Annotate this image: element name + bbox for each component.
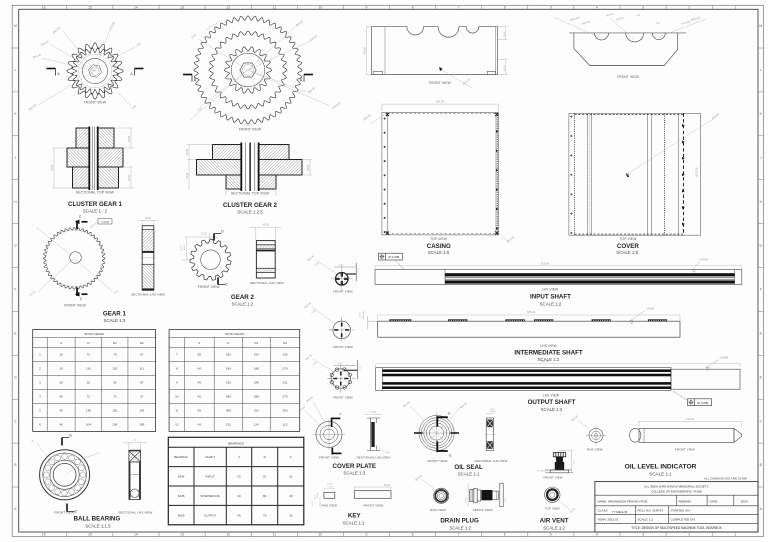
svg-text:152: 152 [112,409,117,413]
svg-text:10: 10 [318,5,322,9]
svg-text:CLUSTER GEAR 2: CLUSTER GEAR 2 [223,202,278,209]
svg-text:20: 20 [59,367,63,371]
svg-text:CLASS:: CLASS: [598,509,609,513]
svg-text:208: 208 [112,423,117,427]
svg-text:G: G [759,244,762,248]
svg-text:GEAR 2: GEAR 2 [231,294,255,301]
svg-text:5: 5 [550,5,552,9]
svg-text:10.03: 10.03 [574,459,576,465]
svg-text:FRONT VIEW: FRONT VIEW [198,285,220,289]
svg-text:124: 124 [254,423,259,427]
svg-text:40: 40 [59,423,63,427]
svg-text:45: 45 [198,395,202,399]
svg-text:REMARK: REMARK [679,499,692,503]
svg-text:L: L [14,68,16,72]
svg-text:10: 10 [318,533,322,537]
svg-text:TITLE: DESIGN OF MULTISPEED MA: TITLE: DESIGN OF MULTISPEED MACHINE TOOL… [631,526,722,530]
svg-text:15.00: 15.00 [504,65,506,71]
svg-text:FRONT VIEW: FRONT VIEW [239,128,262,132]
svg-text:11: 11 [272,5,276,9]
svg-text:16: 16 [42,533,46,537]
svg-text:0.002: 0.002 [360,312,362,318]
svg-text:40.00: 40.00 [128,135,131,142]
svg-text:INTERMEDIATE: INTERMEDIATE [201,494,220,498]
svg-text:SHAFT: SHAFT [205,455,215,459]
svg-text:E: E [448,412,450,416]
svg-text:52: 52 [263,475,267,479]
svg-text:7.00: 7.00 [490,409,495,412]
svg-text:68.00: 68.00 [384,484,391,487]
svg-text:2: 2 [688,533,690,537]
svg-text:M: M [759,24,762,28]
svg-text:FRONT VIEW: FRONT VIEW [333,345,353,349]
svg-text:18: 18 [289,494,293,498]
svg-text:40: 40 [237,494,241,498]
svg-text:RHS VIEW: RHS VIEW [321,504,337,508]
svg-text:YEAR: 2022-23: YEAR: 2022-23 [598,517,619,521]
svg-text:40.00: 40.00 [263,223,270,226]
svg-text:SPUR GEARS: SPUR GEARS [225,332,245,336]
svg-text:SCALE 1:2: SCALE 1:2 [232,302,254,307]
svg-text:DRAIN PLUG: DRAIN PLUG [440,518,479,525]
svg-text:F: F [14,288,16,292]
svg-text:96: 96 [113,381,117,385]
svg-text:0.0008: 0.0008 [700,257,708,261]
svg-text:SCALE 1:2: SCALE 1:2 [449,526,471,531]
svg-text:SPUR GEARS: SPUR GEARS [84,332,104,336]
svg-text:Ø 0.008: Ø 0.008 [389,255,400,259]
svg-text:12: 12 [175,423,179,427]
svg-text:312: 312 [254,409,259,413]
svg-text:FRONT VIEW: FRONT VIEW [54,511,74,515]
svg-text:0.008: 0.008 [327,486,333,488]
svg-text:2: 2 [688,5,690,9]
svg-text:14: 14 [134,5,138,9]
svg-text:7: 7 [458,533,460,537]
svg-text:87: 87 [140,381,144,385]
svg-text:SCALE 1:2.5: SCALE 1:2.5 [237,210,263,215]
svg-text:SECTIONAL TOP VIEW: SECTIONAL TOP VIEW [231,192,270,196]
svg-text:120: 120 [226,423,231,427]
svg-text:SCALE 1:3: SCALE 1:3 [104,318,126,323]
svg-text:TY MECH B: TY MECH B [612,510,627,514]
svg-text:CLUSTER GEAR 1: CLUSTER GEAR 1 [68,201,123,208]
svg-text:12: 12 [226,533,230,537]
svg-text:188: 188 [254,367,259,371]
svg-text:COMPLETED ON:: COMPLETED ON: [671,517,696,521]
svg-text:15: 15 [88,533,92,537]
svg-text:J: J [15,156,17,160]
svg-text:67: 67 [140,395,144,399]
svg-text:3: 3 [642,5,644,9]
svg-text:OUTPUT SHAFT: OUTPUT SHAFT [528,399,576,406]
svg-text:204: 204 [86,423,91,427]
svg-text:45.00: 45.00 [184,244,186,250]
svg-text:BEARING: BEARING [174,455,188,459]
svg-text:40: 40 [198,367,202,371]
svg-text:148: 148 [86,409,91,413]
svg-text:RHS VIEW: RHS VIEW [430,508,446,512]
svg-text:Ø 15.00: Ø 15.00 [537,470,546,472]
svg-text:665.00: 665.00 [527,310,535,314]
svg-text:D2: D2 [140,341,144,345]
svg-text:FRONT VIEW: FRONT VIEW [84,101,107,105]
svg-text:L: L [760,68,762,72]
svg-text:DATE:: DATE: [710,499,719,503]
svg-text:1: 1 [734,533,736,537]
svg-text:TOP VIEW: TOP VIEW [619,237,637,241]
svg-text:SCALE 1:2: SCALE 1:2 [541,407,563,412]
svg-text:SECTIONAL LHS VIEW: SECTIONAL LHS VIEW [250,281,284,285]
svg-text:12.00: 12.00 [181,244,183,250]
svg-text:116: 116 [86,367,91,371]
svg-text:16: 16 [42,5,46,9]
svg-text:10: 10 [175,395,179,399]
svg-text:SCALE 1 : 2: SCALE 1 : 2 [83,209,108,214]
svg-text:M: M [14,24,17,28]
svg-text:40.00: 40.00 [186,172,189,179]
svg-text:7: 7 [458,5,460,9]
svg-text:OUTPUT: OUTPUT [204,513,217,517]
svg-text:231: 231 [282,381,287,385]
svg-text:11: 11 [272,533,276,537]
svg-text:Ø475.00: Ø475.00 [695,167,698,177]
svg-text:14: 14 [134,533,138,537]
svg-text:13: 13 [180,533,184,537]
svg-text:FRONT VIEW: FRONT VIEW [64,304,86,308]
svg-text:240: 240 [254,381,259,385]
svg-text:D1: D1 [254,341,258,345]
svg-text:199: 199 [139,423,144,427]
svg-text:1: 1 [734,5,736,9]
svg-text:F: F [340,412,342,416]
svg-text:40: 40 [59,395,63,399]
svg-text:INPUT: INPUT [206,475,215,479]
svg-text:279: 279 [282,395,287,399]
svg-text:303: 303 [282,409,287,413]
svg-text:80: 80 [263,494,267,498]
svg-text:6304: 6304 [178,475,185,479]
svg-text:COLLEGE OF ENGINEERING, PUNE: COLLEGE OF ENGINEERING, PUNE [651,489,702,493]
svg-text:BEARINGS: BEARINGS [228,442,244,446]
svg-text:604.00: 604.00 [436,99,444,103]
svg-text:27.00: 27.00 [370,411,377,414]
svg-text:17.45: 17.45 [466,497,468,503]
svg-text:RHS VIEW: RHS VIEW [587,448,603,452]
svg-text:E: E [449,454,451,458]
svg-text:Ø 0.008: Ø 0.008 [698,401,709,405]
svg-text:FRONT VIEW: FRONT VIEW [363,504,383,508]
svg-text:9: 9 [366,533,368,537]
svg-text:75: 75 [263,513,267,517]
svg-text:40.00: 40.00 [145,217,152,220]
svg-text:45: 45 [237,513,241,517]
svg-text:45: 45 [198,409,202,413]
svg-text:0.0008: 0.0008 [720,356,728,360]
svg-text:600.00: 600.00 [541,359,549,363]
svg-text:600.00: 600.00 [541,261,549,265]
svg-text:40.00: 40.00 [307,164,310,171]
svg-text:4: 4 [596,5,598,9]
svg-text:308: 308 [226,409,231,413]
svg-text:FRONT VIEW: FRONT VIEW [333,396,353,400]
svg-text:GEAR 1: GEAR 1 [103,311,127,318]
svg-text:SCALE 1:5: SCALE 1:5 [616,250,638,255]
svg-text:12.00: 12.00 [201,233,208,236]
svg-text:184: 184 [226,367,231,371]
svg-text:4: 4 [596,533,598,537]
svg-text:72: 72 [87,353,91,357]
svg-text:COVER: COVER [617,243,640,250]
svg-text:143: 143 [139,409,144,413]
svg-text:INTERMEDIATE SHAFT: INTERMEDIATE SHAFT [514,350,583,357]
svg-text:164: 164 [254,353,259,357]
svg-text:ROLL NO: 21MT57: ROLL NO: 21MT57 [638,509,664,513]
svg-text:FRONT VIEW: FRONT VIEW [617,75,639,79]
svg-text:6: 6 [504,5,506,9]
svg-text:40: 40 [59,409,63,413]
svg-text:AIR VENT: AIR VENT [540,518,569,525]
svg-text:12.07: 12.07 [505,497,507,503]
svg-text:COVER PLATE: COVER PLATE [333,463,377,470]
svg-text:20: 20 [59,353,63,357]
svg-text:KEY: KEY [348,513,362,520]
svg-text:J: J [760,156,762,160]
svg-text:SCALE 1:5: SCALE 1:5 [428,250,450,255]
svg-text:0.0008: 0.0008 [646,307,654,311]
svg-text:SECTIONAL LHS VIEW: SECTIONAL LHS VIEW [475,459,508,463]
svg-text:SCALE 1:2: SCALE 1:2 [540,302,562,307]
svg-text:SIGN: SIGN [741,499,748,503]
svg-text:FRONT VIEW: FRONT VIEW [429,81,451,85]
svg-text:OIL SEAL: OIL SEAL [454,464,483,471]
svg-text:STARTED ON:: STARTED ON: [671,509,691,513]
svg-text:Ø45.00: Ø45.00 [363,311,365,319]
svg-text:6208: 6208 [178,494,185,498]
svg-text:NAME: HRISHIKESH PRAVIN VITVE: NAME: HRISHIKESH PRAVIN VITVE [598,499,648,503]
svg-text:INPUT SHAFT: INPUT SHAFT [530,294,571,301]
svg-text:SECTIONAL TOP VIEW: SECTIONAL TOP VIEW [76,191,115,195]
svg-text:8: 8 [412,5,414,9]
svg-text:SECTIONAL LHS VIEW: SECTIONAL LHS VIEW [131,293,165,297]
svg-text:111: 111 [139,367,144,371]
svg-text:TOP VIEW: TOP VIEW [545,507,560,511]
svg-text:D2: D2 [283,341,287,345]
svg-text:115: 115 [283,423,288,427]
svg-text:SCALE 1:1: SCALE 1:1 [649,472,672,477]
svg-text:15: 15 [88,5,92,9]
svg-text:248.00: 248.00 [364,47,367,55]
svg-text:179: 179 [282,367,287,371]
svg-text:FRONT VIEW: FRONT VIEW [473,508,493,512]
svg-text:G: G [14,244,17,248]
svg-text:6009: 6009 [178,513,185,517]
svg-text:40.00: 40.00 [128,174,131,181]
svg-text:16: 16 [289,513,293,517]
svg-text:SCALE 1:3: SCALE 1:3 [343,471,365,476]
svg-text:20: 20 [237,475,241,479]
svg-text:160: 160 [226,353,231,357]
svg-text:120: 120 [112,367,117,371]
svg-text:6: 6 [504,533,506,537]
svg-text:FRONT VIEW: FRONT VIEW [675,448,695,452]
svg-text:FRONT VIEW: FRONT VIEW [333,290,353,294]
svg-text:236: 236 [226,381,231,385]
svg-text:76: 76 [113,353,117,357]
svg-text:SCALE 1:1: SCALE 1:1 [458,472,480,477]
svg-text:LHS VIEW: LHS VIEW [542,288,559,292]
svg-text:113.00: 113.00 [686,417,694,421]
svg-text:288: 288 [254,395,259,399]
svg-text:3: 3 [642,533,644,537]
svg-text:OIL LEVEL INDICATOR: OIL LEVEL INDICATOR [625,464,697,471]
svg-text:0.0008: 0.0008 [101,221,109,224]
svg-text:40.00: 40.00 [186,148,189,155]
svg-text:12.00: 12.00 [327,484,333,486]
svg-text:11: 11 [175,409,178,413]
svg-text:13: 13 [180,5,184,9]
svg-text:9: 9 [366,5,368,9]
svg-text:45: 45 [198,423,202,427]
svg-text:40: 40 [198,381,202,385]
svg-text:FRONT VIEW: FRONT VIEW [427,459,447,463]
svg-text:40: 40 [198,353,202,357]
svg-text:92: 92 [87,381,91,385]
svg-text:TOP VIEW: TOP VIEW [430,237,448,241]
svg-text:FRONT VIEW: FRONT VIEW [319,456,339,460]
svg-text:BALL BEARING: BALL BEARING [74,516,121,523]
svg-text:284: 284 [226,395,231,399]
svg-text:F: F [760,288,762,292]
svg-text:72: 72 [87,395,91,399]
svg-text:LHS VIEW: LHS VIEW [543,394,560,398]
svg-text:5: 5 [550,533,552,537]
svg-text:20: 20 [59,381,63,385]
svg-text:SECTIONAL LHS VIEW: SECTIONAL LHS VIEW [118,511,152,515]
svg-text:FRONT VIEW: FRONT VIEW [543,476,562,480]
svg-text:D1: D1 [113,341,117,345]
svg-text:ALL INDIA SHRI SHIVAJI MEMORIA: ALL INDIA SHRI SHIVAJI MEMORIAL SOCIETY, [644,485,709,489]
svg-text:40.00: 40.00 [51,164,54,171]
svg-text:15: 15 [289,475,293,479]
svg-text:12: 12 [226,5,230,9]
svg-text:SCALE 1:1.5: SCALE 1:1.5 [85,524,111,529]
svg-text:76: 76 [113,395,117,399]
svg-text:SCALE 1:1: SCALE 1:1 [343,521,365,526]
svg-text:SECTIONAL LHS VIEW: SECTIONAL LHS VIEW [357,456,391,460]
svg-text:SCALE: 1:1: SCALE: 1:1 [638,517,654,521]
svg-text:8: 8 [412,533,414,537]
svg-text:SCALE 1:2: SCALE 1:2 [543,526,565,531]
svg-text:155: 155 [282,353,287,357]
svg-text:CASING: CASING [427,243,451,250]
svg-text:ALL DIMENSIONS ARE IN MM: ALL DIMENSIONS ARE IN MM [704,476,747,480]
svg-text:67: 67 [140,353,144,357]
svg-text:LHS VIEW: LHS VIEW [540,344,557,348]
